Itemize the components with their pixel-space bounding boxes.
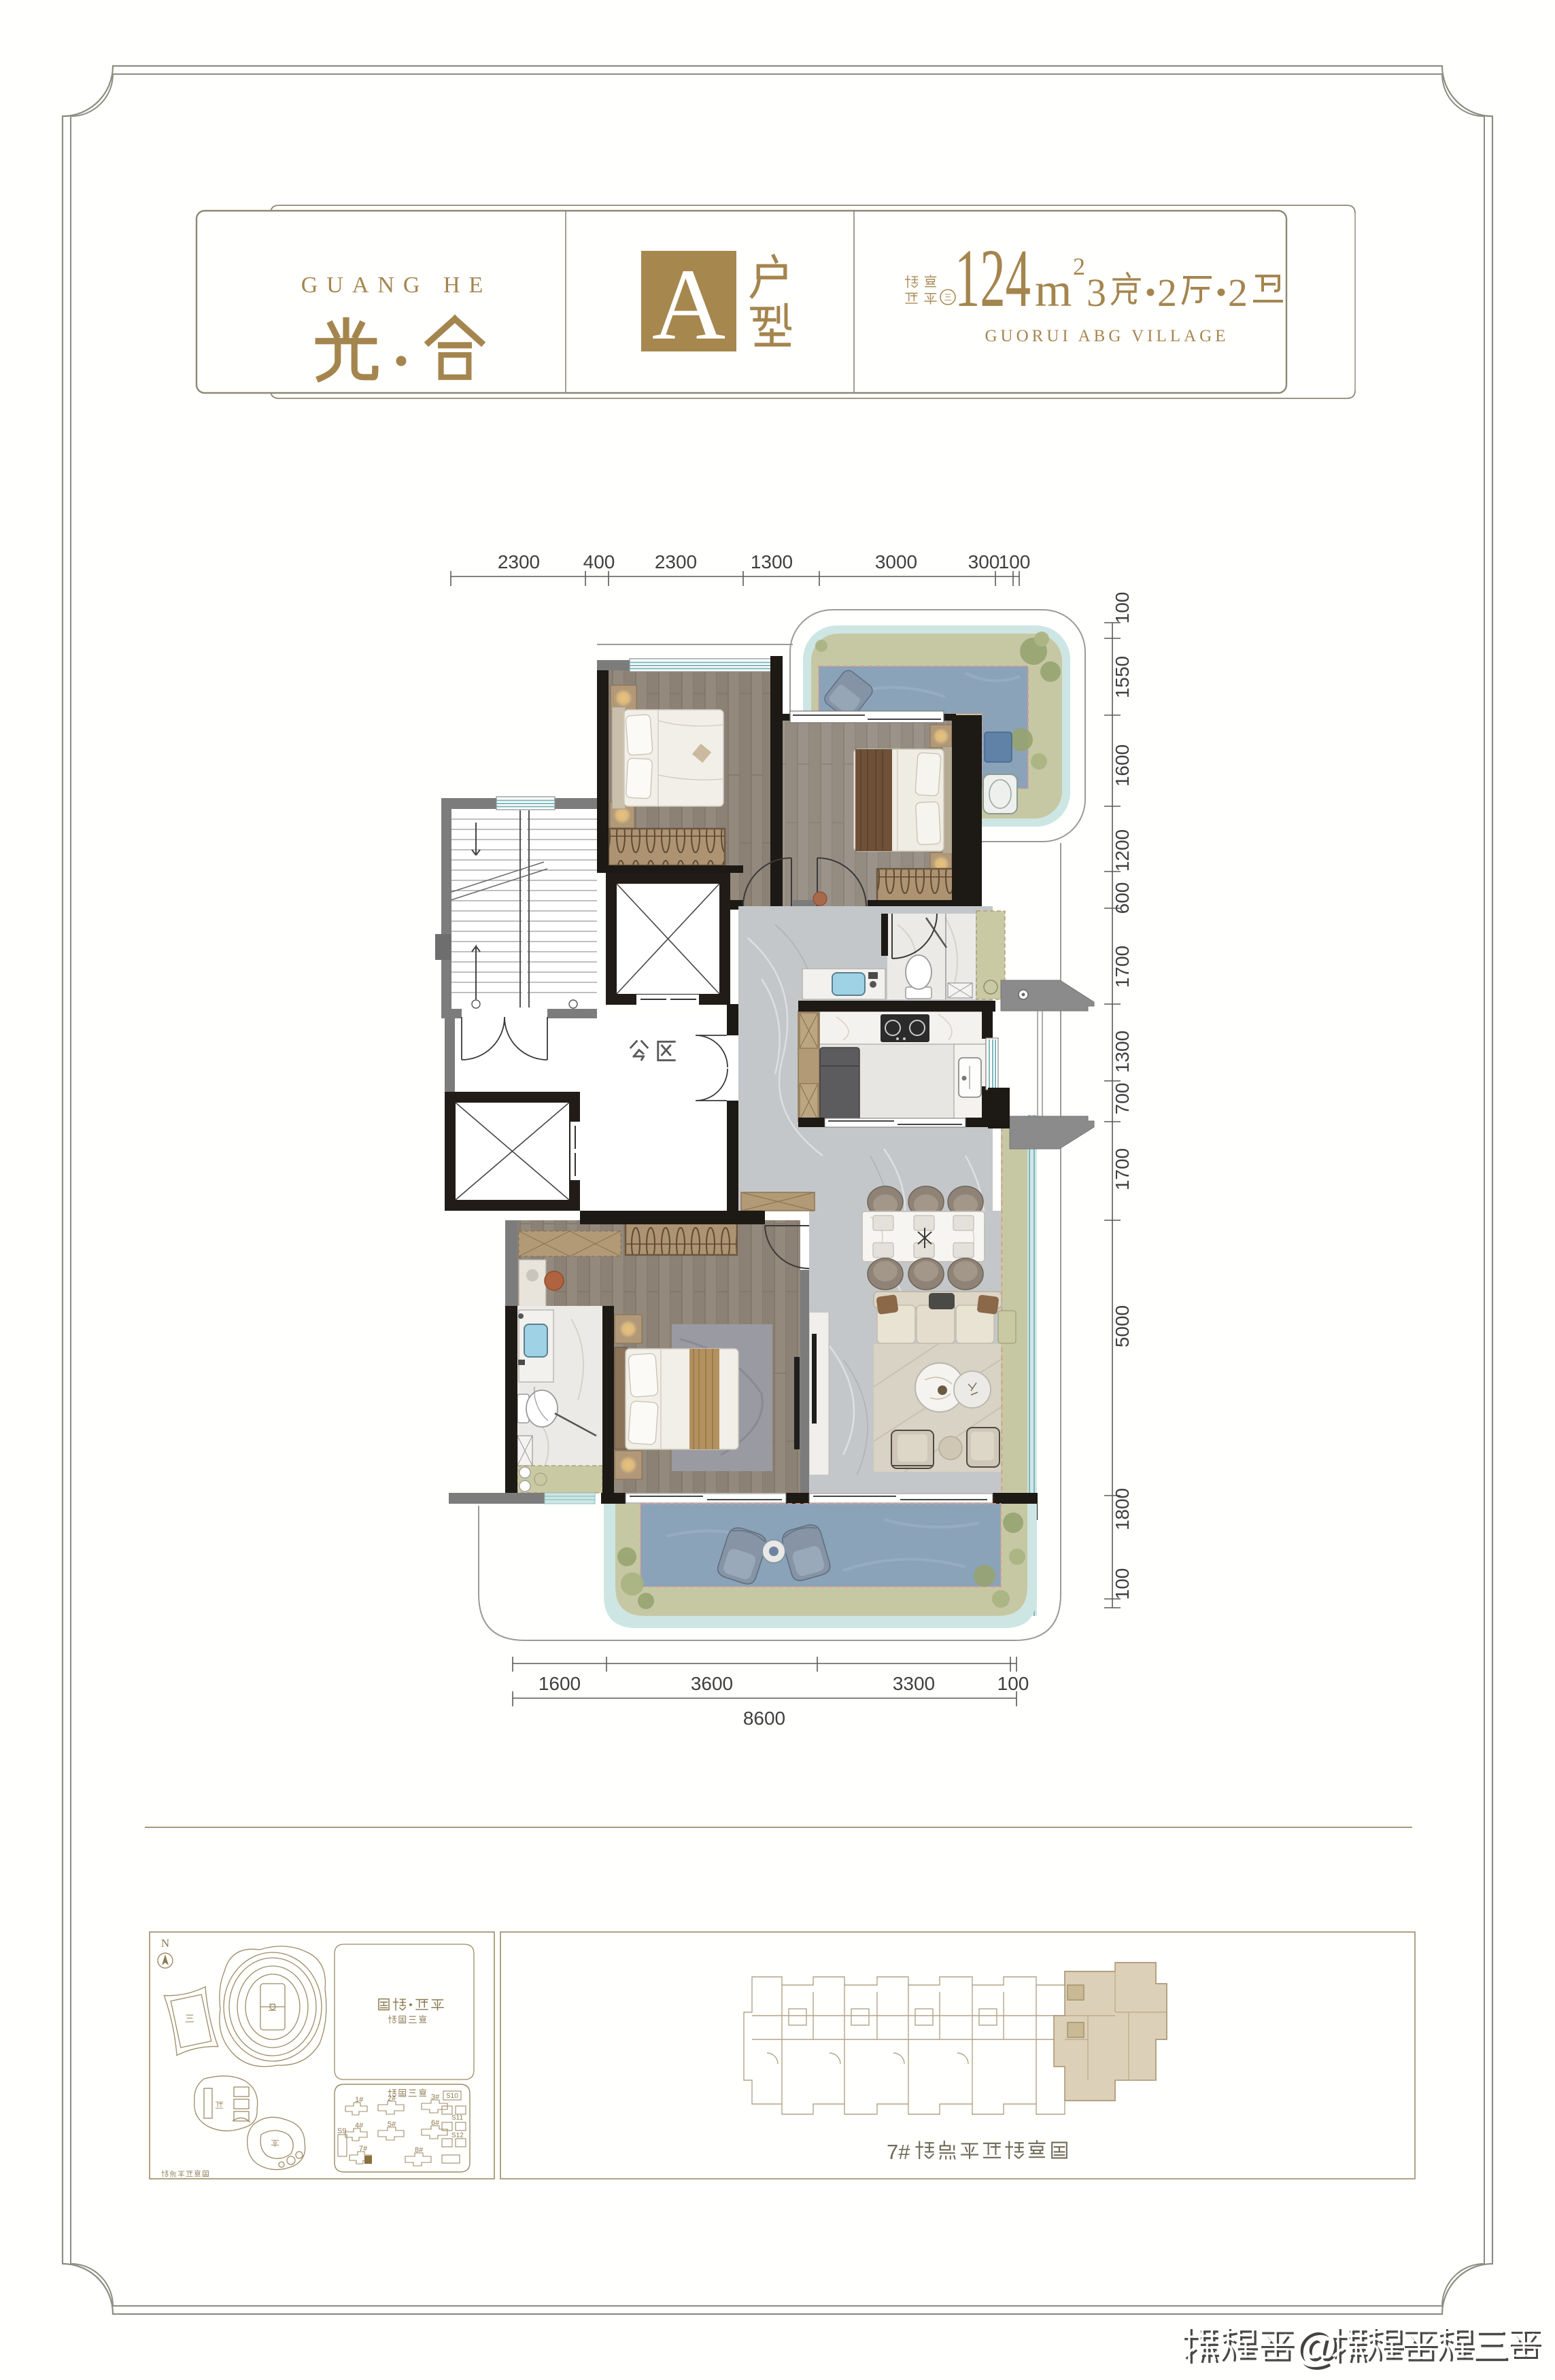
svg-text:1700: 1700 bbox=[1112, 1148, 1133, 1190]
svg-text:1550: 1550 bbox=[1112, 656, 1133, 698]
svg-text:5000: 5000 bbox=[1112, 1305, 1133, 1347]
svg-text:@: @ bbox=[1295, 2321, 1337, 2370]
svg-text:A: A bbox=[652, 248, 725, 361]
svg-text:7#: 7# bbox=[887, 2140, 910, 2164]
svg-text:2: 2 bbox=[1073, 253, 1085, 280]
svg-text:N: N bbox=[161, 1937, 169, 1950]
svg-text:6#: 6# bbox=[431, 2119, 440, 2127]
svg-text:8600: 8600 bbox=[743, 1708, 785, 1729]
svg-text:S12: S12 bbox=[451, 2132, 464, 2139]
svg-text:8#: 8# bbox=[415, 2146, 424, 2154]
svg-text:S10: S10 bbox=[446, 2092, 458, 2100]
svg-text:3600: 3600 bbox=[691, 1673, 733, 1694]
svg-text:600: 600 bbox=[1112, 882, 1133, 914]
svg-text:100: 100 bbox=[1112, 592, 1133, 624]
svg-text:2#: 2# bbox=[388, 2094, 396, 2103]
svg-text:S9: S9 bbox=[337, 2127, 346, 2135]
svg-text:2: 2 bbox=[1157, 271, 1177, 315]
svg-text:1#: 1# bbox=[355, 2096, 364, 2104]
svg-text:GUORUI ABG VILLAGE: GUORUI ABG VILLAGE bbox=[985, 327, 1229, 345]
svg-text:400: 400 bbox=[583, 551, 615, 572]
svg-text:124: 124 bbox=[955, 232, 1031, 324]
svg-text:100: 100 bbox=[997, 1673, 1029, 1694]
svg-text:700: 700 bbox=[1112, 1083, 1133, 1115]
svg-text:5#: 5# bbox=[388, 2120, 396, 2128]
svg-text:3300: 3300 bbox=[893, 1673, 935, 1694]
svg-text:2: 2 bbox=[1228, 271, 1248, 315]
svg-text:1600: 1600 bbox=[1112, 744, 1133, 787]
svg-text:1200: 1200 bbox=[1112, 829, 1133, 872]
svg-text:3: 3 bbox=[1087, 271, 1106, 315]
svg-text:300: 300 bbox=[968, 551, 1000, 572]
svg-text:2300: 2300 bbox=[498, 551, 540, 572]
svg-text:100: 100 bbox=[999, 551, 1031, 572]
svg-text:2300: 2300 bbox=[655, 551, 697, 572]
svg-text:3000: 3000 bbox=[875, 551, 917, 572]
svg-text:S11: S11 bbox=[451, 2114, 463, 2122]
svg-text:1300: 1300 bbox=[1112, 1031, 1133, 1073]
svg-text:1600: 1600 bbox=[539, 1673, 581, 1694]
svg-text:1700: 1700 bbox=[1112, 946, 1133, 988]
svg-text:1300: 1300 bbox=[751, 551, 793, 572]
svg-text:m: m bbox=[1035, 264, 1072, 317]
svg-text:1800: 1800 bbox=[1112, 1488, 1133, 1530]
svg-text:100: 100 bbox=[1112, 1568, 1133, 1600]
svg-text:GUANG HE: GUANG HE bbox=[301, 273, 492, 298]
svg-text:3#: 3# bbox=[431, 2093, 440, 2101]
svg-text:4#: 4# bbox=[355, 2122, 364, 2130]
svg-text:7#: 7# bbox=[359, 2145, 368, 2153]
